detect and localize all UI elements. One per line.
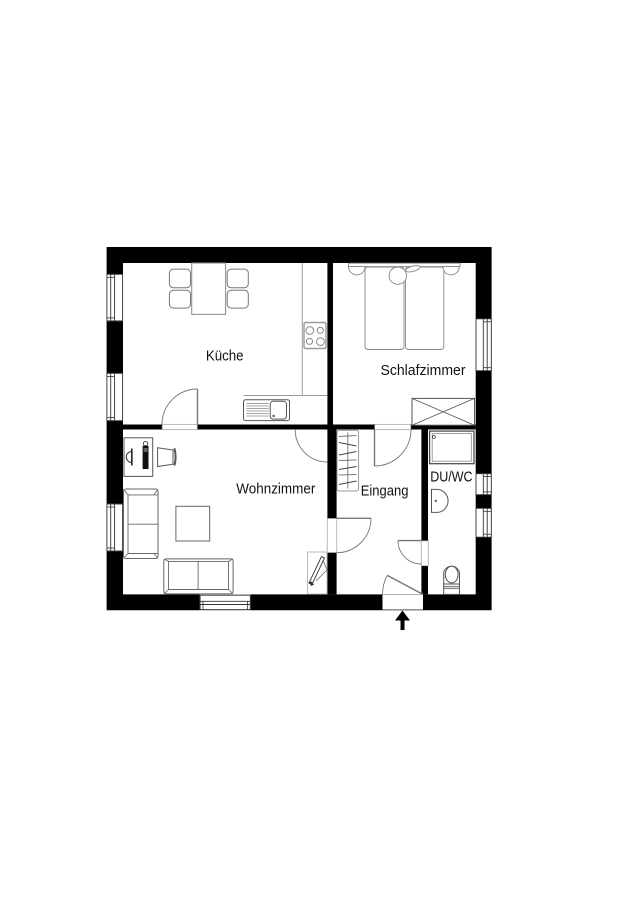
svg-text:Eingang: Eingang	[361, 482, 409, 499]
svg-text:DU/WC: DU/WC	[430, 469, 472, 486]
svg-text:Küche: Küche	[206, 348, 244, 365]
svg-text:Schlafzimmer: Schlafzimmer	[381, 362, 466, 379]
svg-text:Wohnzimmer: Wohnzimmer	[236, 481, 315, 498]
